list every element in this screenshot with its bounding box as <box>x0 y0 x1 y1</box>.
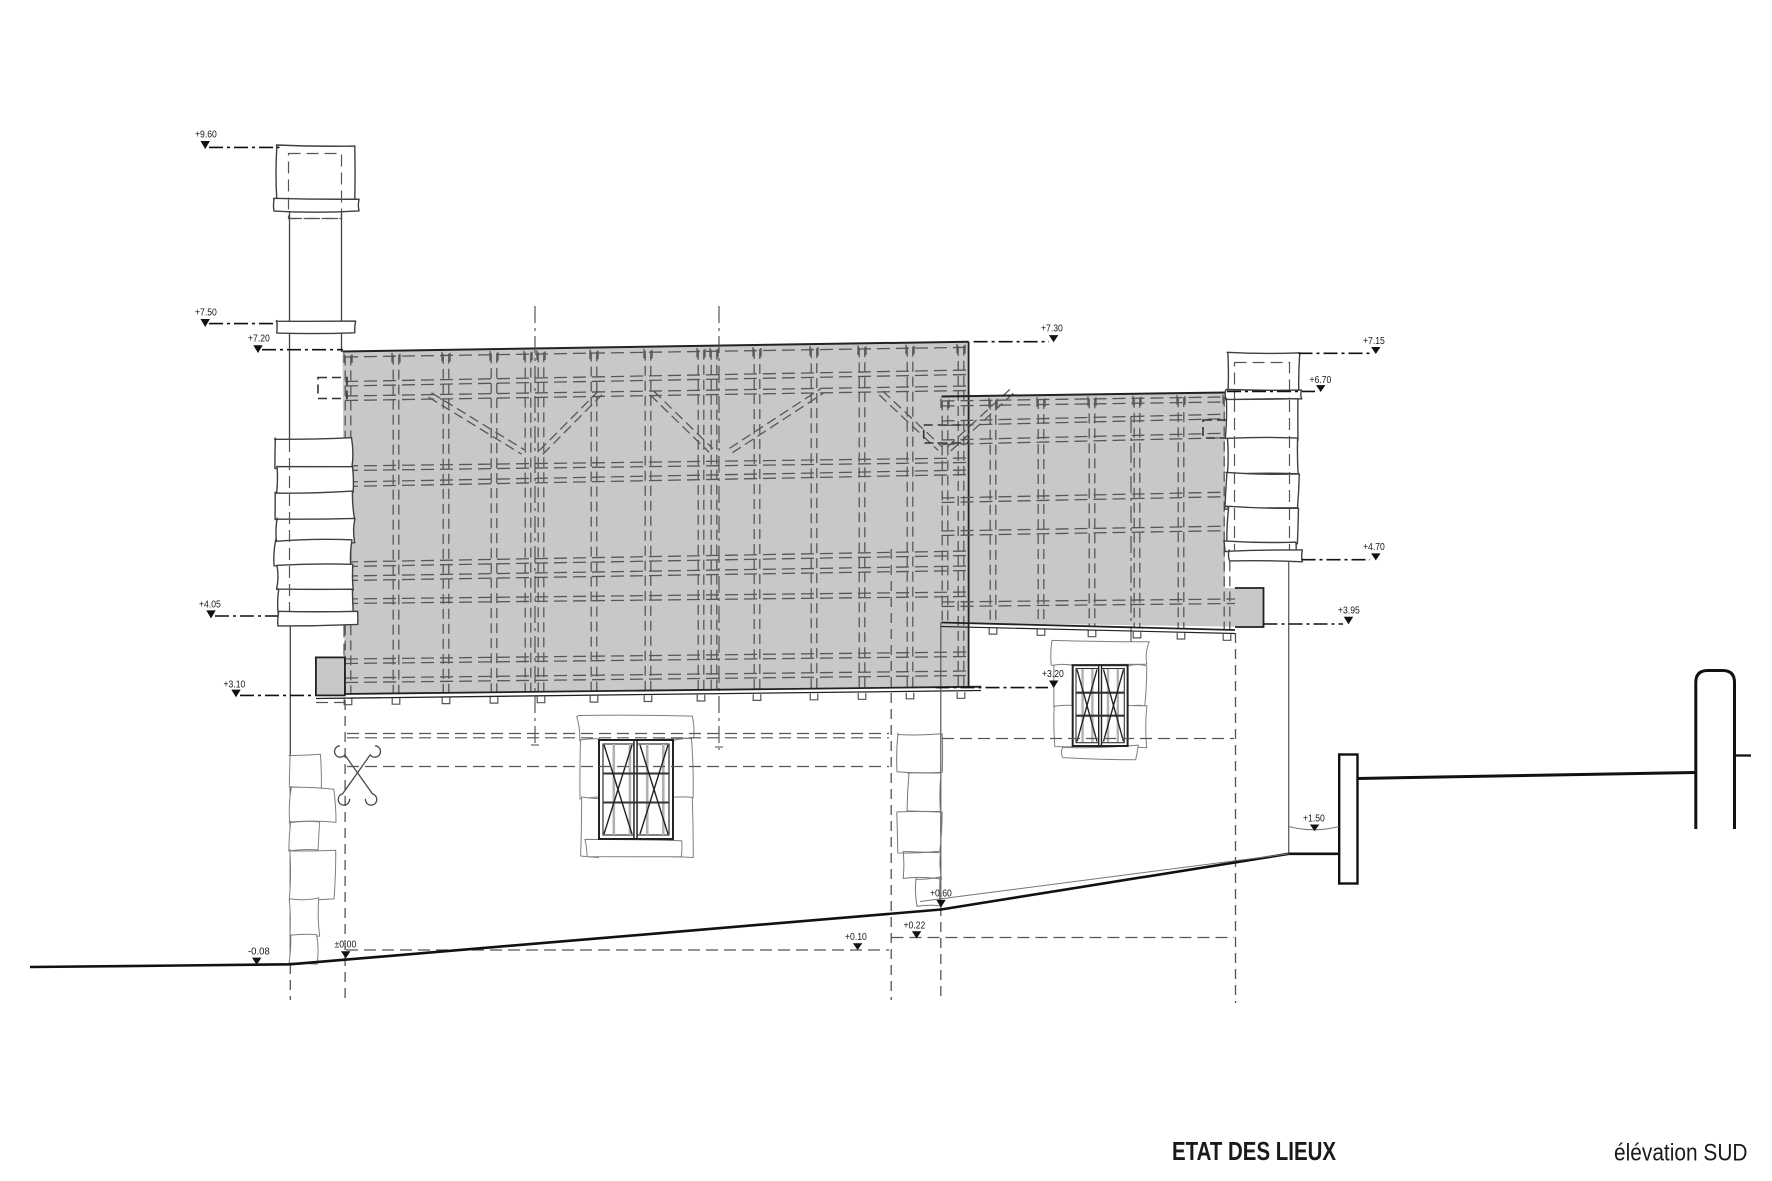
svg-text:+1.50: +1.50 <box>1303 814 1325 825</box>
svg-text:+4.05: +4.05 <box>199 600 221 611</box>
svg-text:±0.00: ±0.00 <box>335 940 357 951</box>
svg-text:+3.95: +3.95 <box>1338 606 1360 617</box>
svg-text:+7.20: +7.20 <box>248 334 270 345</box>
svg-text:+7.30: +7.30 <box>1041 324 1063 335</box>
svg-text:+7.15: +7.15 <box>1363 336 1385 347</box>
svg-text:+0.60: +0.60 <box>930 889 952 900</box>
svg-text:+3.10: +3.10 <box>224 680 246 691</box>
svg-text:+4.70: +4.70 <box>1363 542 1385 553</box>
svg-text:ETAT DES LIEUX: ETAT DES LIEUX <box>1172 1138 1336 1166</box>
svg-text:+0.22: +0.22 <box>904 921 926 932</box>
svg-text:élévation SUD: élévation SUD <box>1614 1140 1748 1167</box>
svg-text:+3.20: +3.20 <box>1042 669 1064 680</box>
svg-text:+0.10: +0.10 <box>845 932 867 943</box>
svg-text:+6.70: +6.70 <box>1310 375 1332 386</box>
svg-text:+7.50: +7.50 <box>195 308 217 319</box>
svg-text:+9.60: +9.60 <box>195 130 217 141</box>
svg-text:-0.08: -0.08 <box>248 947 270 958</box>
